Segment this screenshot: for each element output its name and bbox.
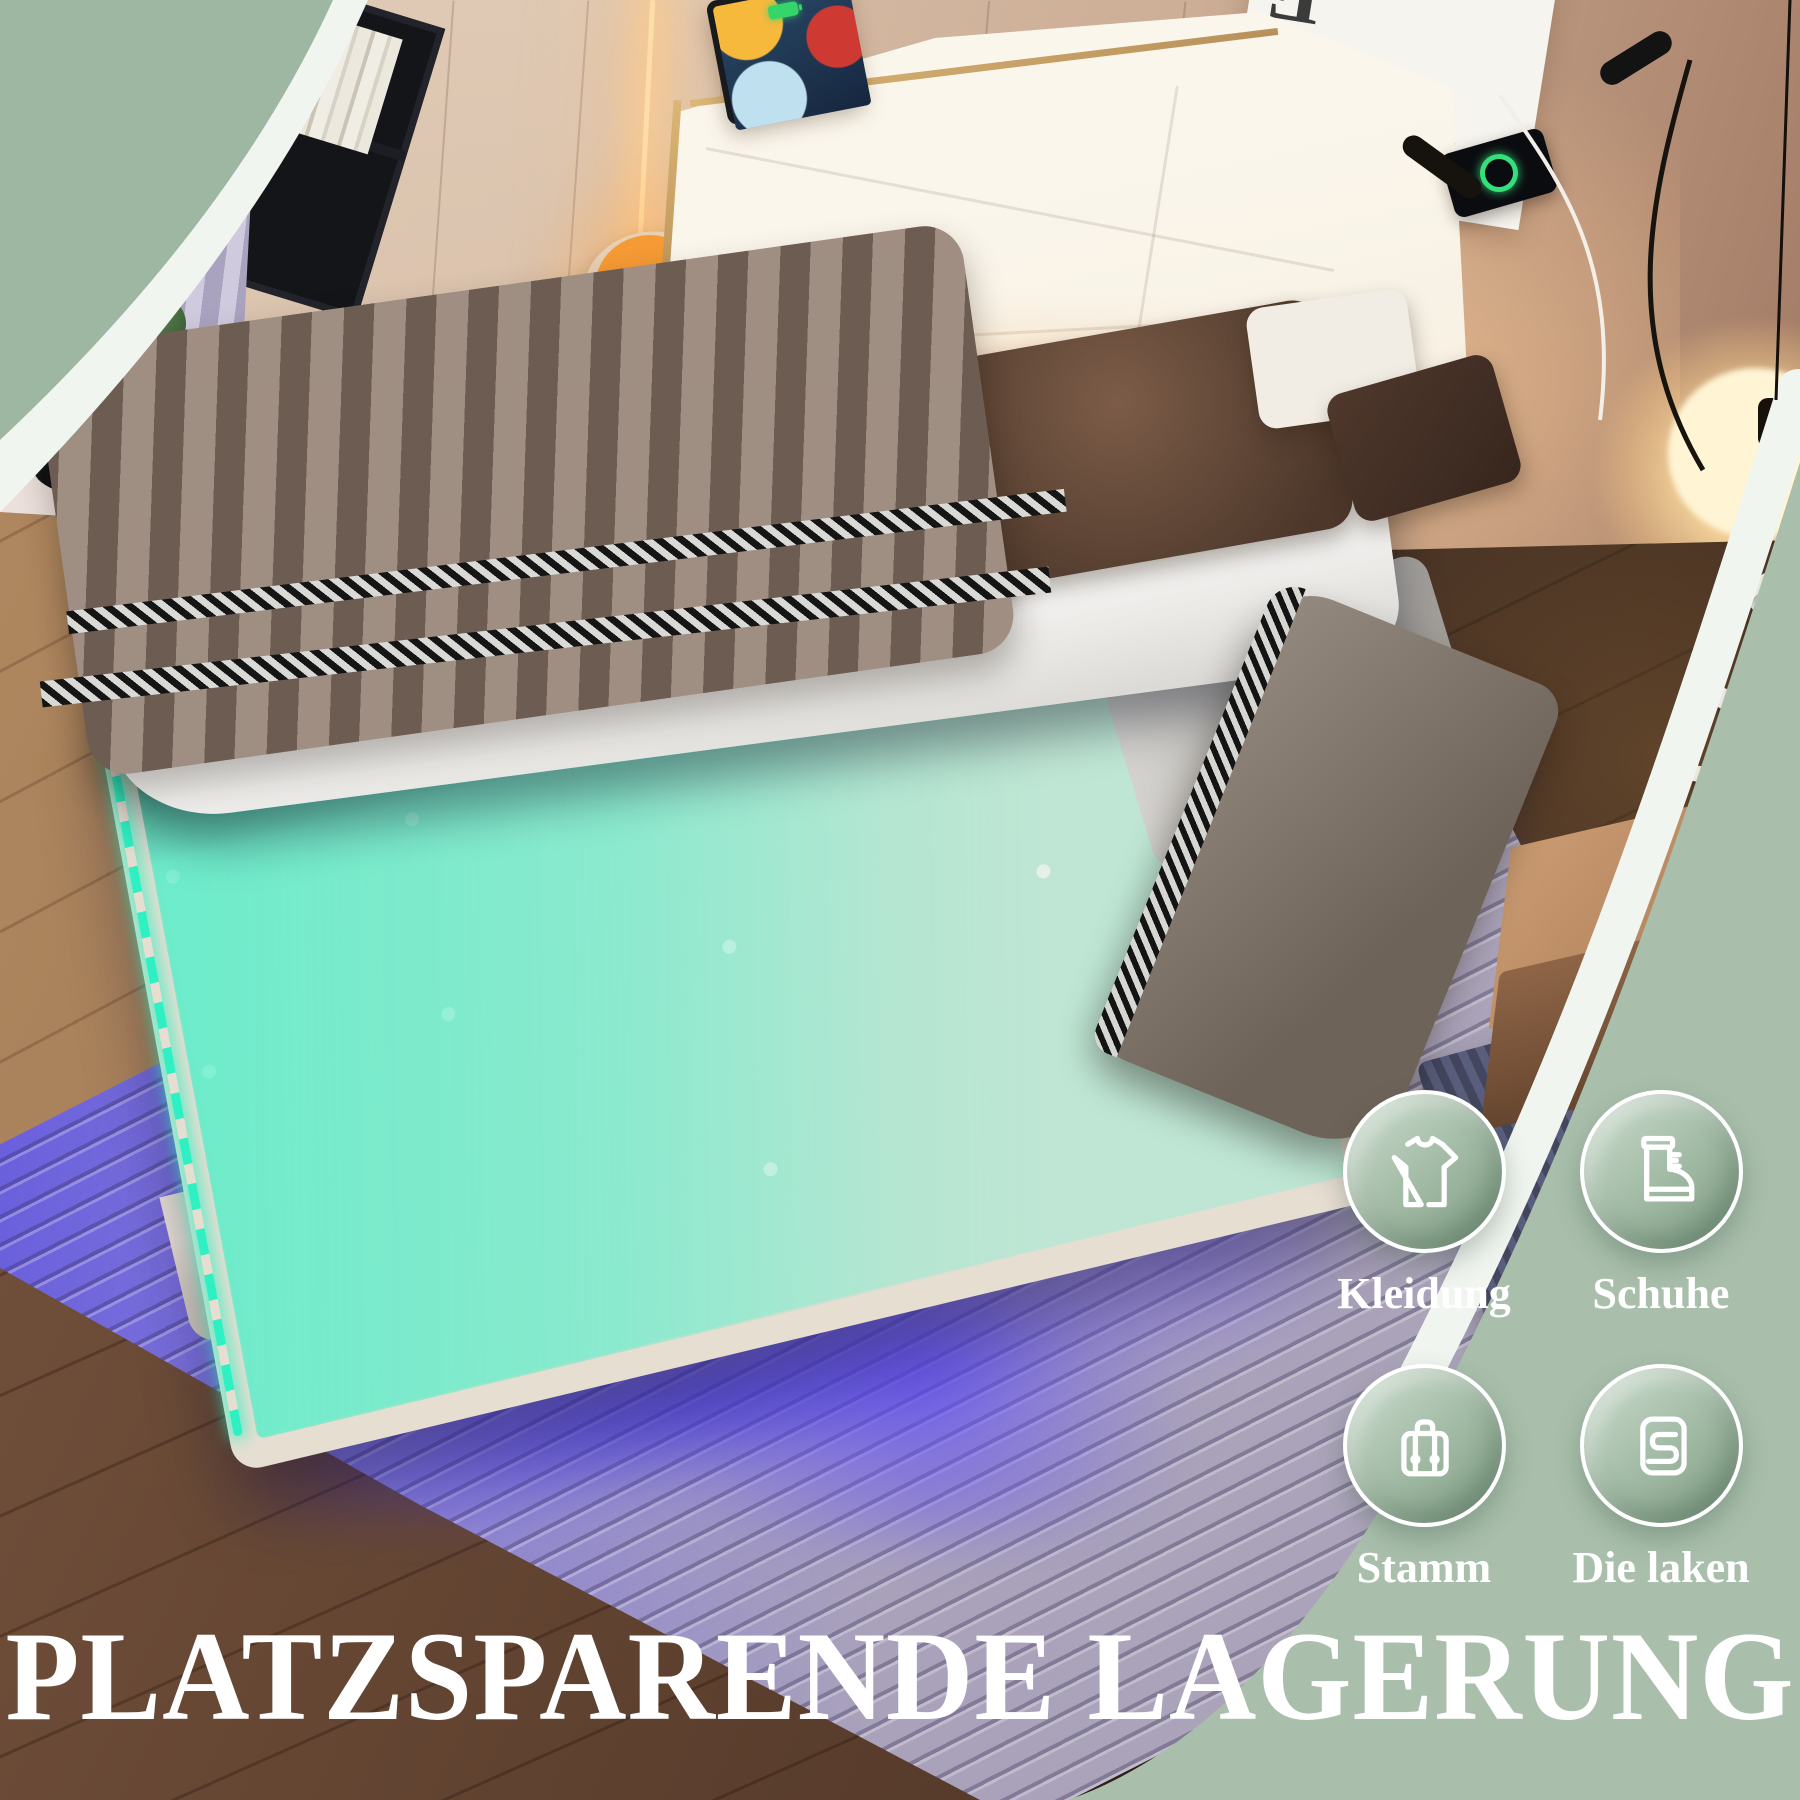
sheets-icon bbox=[1616, 1400, 1708, 1492]
badge-label-schuhe: Schuhe bbox=[1491, 1268, 1800, 1319]
feature-badge-shoes bbox=[1580, 1090, 1743, 1253]
lamp-cable bbox=[1500, 95, 1604, 420]
boot-icon bbox=[1616, 1126, 1708, 1218]
green-corner-overlays bbox=[0, 0, 1800, 1800]
floor-lamp-pole bbox=[1650, 60, 1703, 470]
sage-wedge-top-left bbox=[0, 0, 333, 440]
badge-label-die-laken: Die laken bbox=[1491, 1542, 1800, 1593]
headline-platzsparende-lagerung: PLATZSPARENDE LAGERUNG bbox=[0, 1605, 1800, 1751]
product-marketing-image: FASHION & ST LOVE bbox=[0, 0, 1800, 1800]
feature-badge-sheets bbox=[1580, 1364, 1743, 1527]
feature-badge-trunk bbox=[1343, 1364, 1506, 1527]
pendant-cord bbox=[1776, 0, 1790, 400]
feature-badge-clothing bbox=[1343, 1090, 1506, 1253]
tshirt-icon bbox=[1379, 1126, 1471, 1218]
suitcase-icon bbox=[1379, 1400, 1471, 1492]
